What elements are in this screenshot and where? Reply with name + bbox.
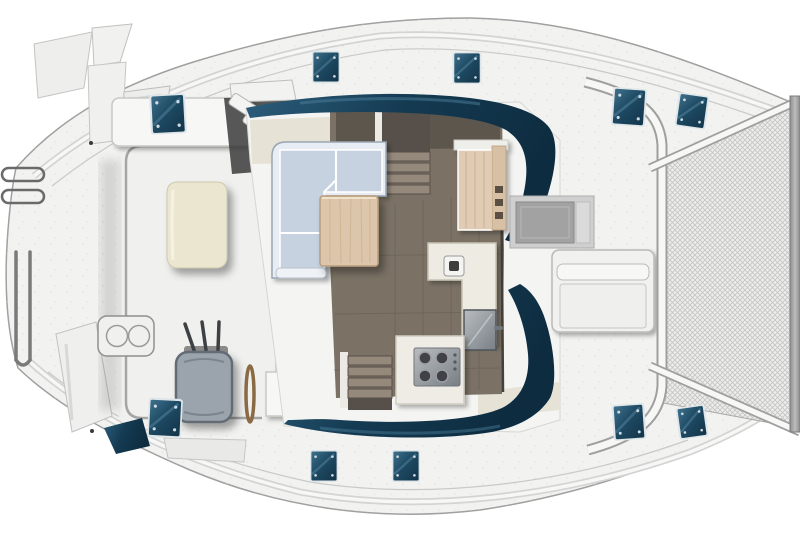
grill bbox=[98, 316, 154, 356]
galley-fridge-cabinet bbox=[454, 140, 508, 230]
foredeck-locker bbox=[552, 250, 654, 332]
hatch-bow-stbd-inner bbox=[612, 404, 645, 441]
hatch-stbd-forward bbox=[148, 398, 183, 437]
hatch-roof-port bbox=[312, 52, 339, 83]
fridge-handle bbox=[494, 326, 503, 330]
stairs-aft bbox=[340, 352, 392, 410]
deck-plan-illustration bbox=[0, 0, 800, 533]
hatch-bow-port-outer bbox=[675, 93, 708, 130]
hatch-sidedeck-aft-1 bbox=[310, 451, 337, 482]
hatch-roof-starboard bbox=[453, 52, 480, 83]
hatch-port-forward bbox=[150, 94, 186, 135]
galley-stove-module bbox=[396, 336, 464, 404]
stern-step-top2 bbox=[34, 32, 92, 98]
stern-step-bottom bbox=[164, 438, 246, 462]
hatch-bow-stbd-outer bbox=[676, 405, 707, 440]
cockpit-table bbox=[167, 182, 227, 268]
catamaran-deck-plan bbox=[0, 0, 800, 533]
foredeck-recessed-hatch bbox=[510, 196, 594, 248]
hatch-sidedeck-aft-2 bbox=[392, 451, 419, 482]
bowsprit-strip bbox=[790, 96, 800, 432]
stern-step-top bbox=[92, 24, 132, 66]
salon-table bbox=[320, 196, 378, 266]
hatch-bow-port-inner bbox=[612, 87, 647, 126]
